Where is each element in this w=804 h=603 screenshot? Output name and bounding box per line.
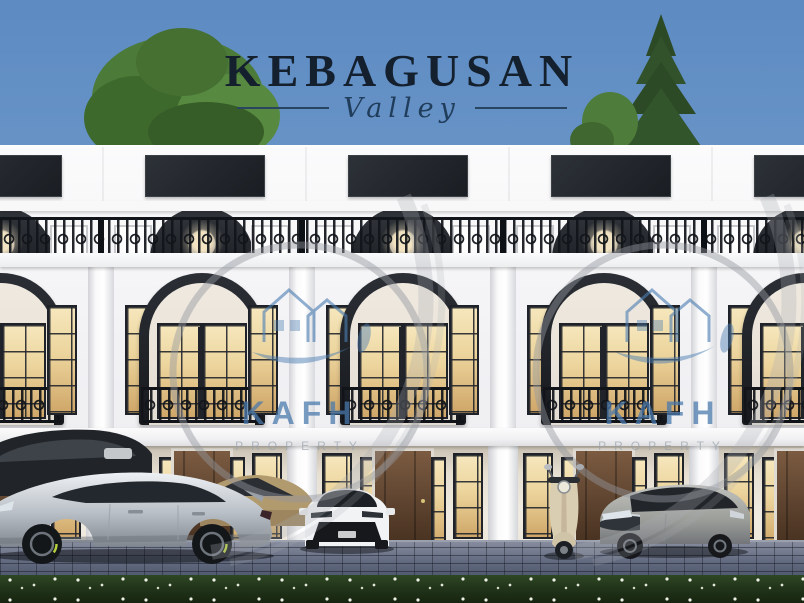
ground-window	[453, 453, 483, 539]
second-floor-band	[0, 267, 804, 428]
arched-window-frame	[541, 273, 667, 425]
pilaster	[691, 267, 717, 428]
flower-grass-strip	[0, 575, 804, 603]
project-title-block: KEBAGUSAN Valley	[0, 46, 804, 124]
narrow-window	[248, 305, 278, 415]
arched-window-frame	[742, 273, 804, 425]
townhouse-unit	[101, 267, 302, 428]
roof-cornice	[0, 201, 804, 211]
juliet-balcony-railing	[342, 387, 464, 423]
title-rule-left	[237, 107, 329, 109]
parapet-dark-panel	[145, 155, 265, 197]
project-title: KEBAGUSAN	[0, 46, 804, 97]
townhouse-unit	[0, 267, 101, 428]
pilaster	[490, 267, 516, 428]
arched-window-frame	[340, 273, 466, 425]
project-subtitle: Valley	[343, 93, 461, 124]
townhouse-unit	[509, 147, 712, 203]
juliet-balcony-railing	[141, 387, 263, 423]
scooter	[538, 460, 590, 562]
juliet-balcony-railing	[543, 387, 665, 423]
townhouse-unit	[0, 147, 103, 203]
townhouse-unit	[103, 147, 306, 203]
terrace-floor-cornice	[0, 253, 804, 267]
juliet-balcony-railing	[744, 387, 804, 423]
project-subtitle-row: Valley	[0, 93, 804, 124]
townhouse-unit	[503, 267, 704, 428]
narrow-window	[449, 305, 479, 415]
narrow-window	[650, 305, 680, 415]
townhouse-unit	[306, 147, 509, 203]
pilaster	[88, 267, 114, 428]
silver-sports-sedan	[0, 450, 278, 566]
parapet-dark-panel	[551, 155, 671, 197]
roof-parapet-band	[0, 147, 804, 203]
rendering-canvas: KEBAGUSAN Valley	[0, 0, 804, 603]
pilaster	[289, 267, 315, 428]
parapet-dark-panel	[754, 155, 804, 197]
arched-window-frame	[139, 273, 265, 425]
gray-sedan	[594, 470, 756, 560]
townhouse-unit	[704, 267, 804, 428]
title-rule-right	[475, 107, 567, 109]
door-sidelight	[431, 457, 446, 547]
parapet-dark-panel	[0, 155, 62, 197]
white-hatchback	[296, 474, 398, 556]
townhouse-unit	[302, 267, 503, 428]
wood-entry-door	[774, 448, 804, 547]
porch-column	[488, 446, 518, 547]
townhouse-unit	[712, 147, 804, 203]
entry-doorset	[762, 451, 804, 547]
narrow-window	[47, 305, 77, 415]
parapet-dark-panel	[348, 155, 468, 197]
